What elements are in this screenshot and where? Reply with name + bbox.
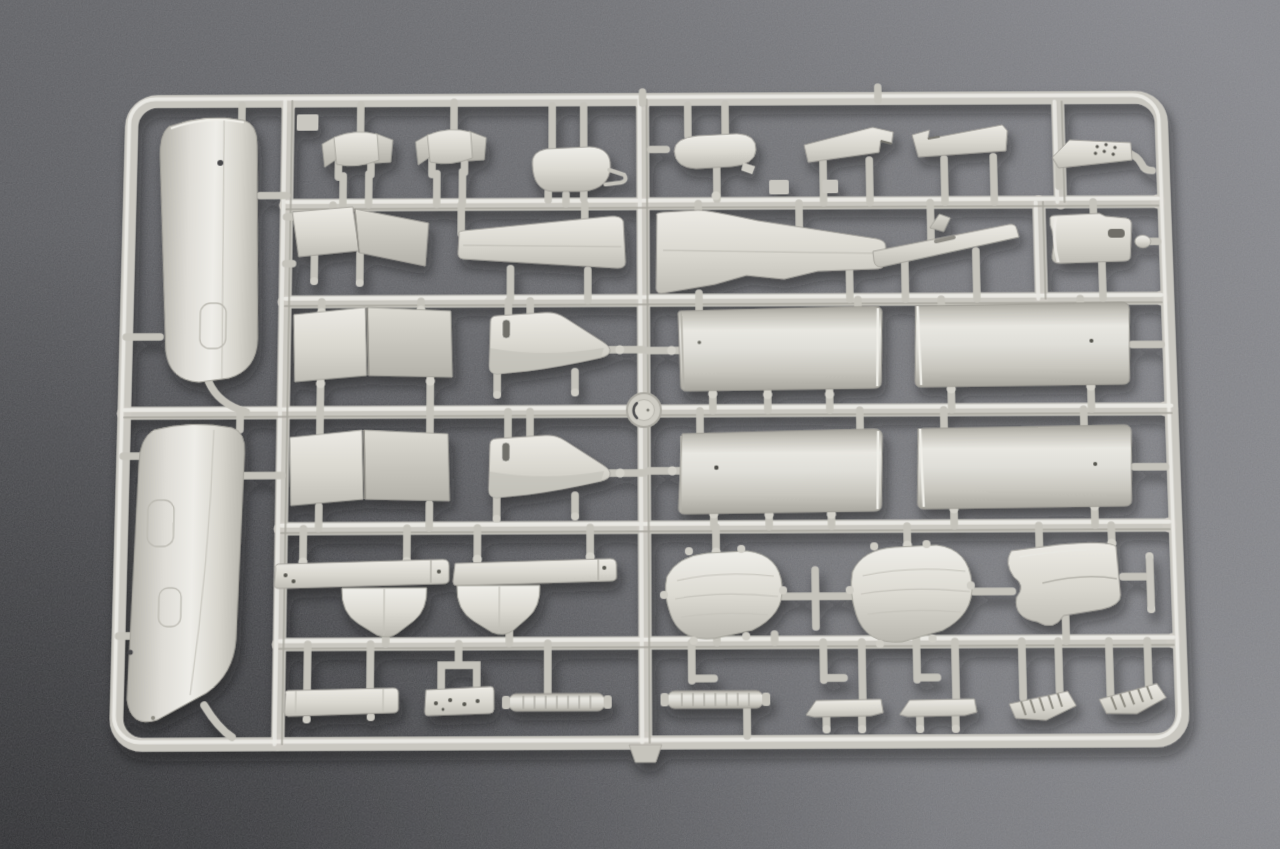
linkage-pin <box>1150 558 1152 607</box>
fuselage-half-upper <box>155 118 262 383</box>
yoke-bracket-a <box>806 699 884 717</box>
stepped-rail <box>284 688 398 716</box>
photo-of-model-kit-sprue: Light grey injection-molded model kit sp… <box>0 0 1280 849</box>
sprue-photo-canvas <box>0 9 1280 849</box>
cylinder-section-1 <box>678 306 883 391</box>
ribbed-roller-a <box>502 693 612 711</box>
cylinder-section-4 <box>916 425 1134 509</box>
mold-boss <box>627 393 661 427</box>
cylinder-section-3 <box>678 429 884 514</box>
cylinder-section-2 <box>914 302 1132 387</box>
split-panel-lower <box>289 430 450 506</box>
gate-tab <box>629 745 662 763</box>
yoke-bracket-b <box>899 699 977 717</box>
split-panel-upper <box>293 307 453 382</box>
drilled-plate <box>425 687 494 716</box>
ribbed-roller-b <box>660 691 770 709</box>
